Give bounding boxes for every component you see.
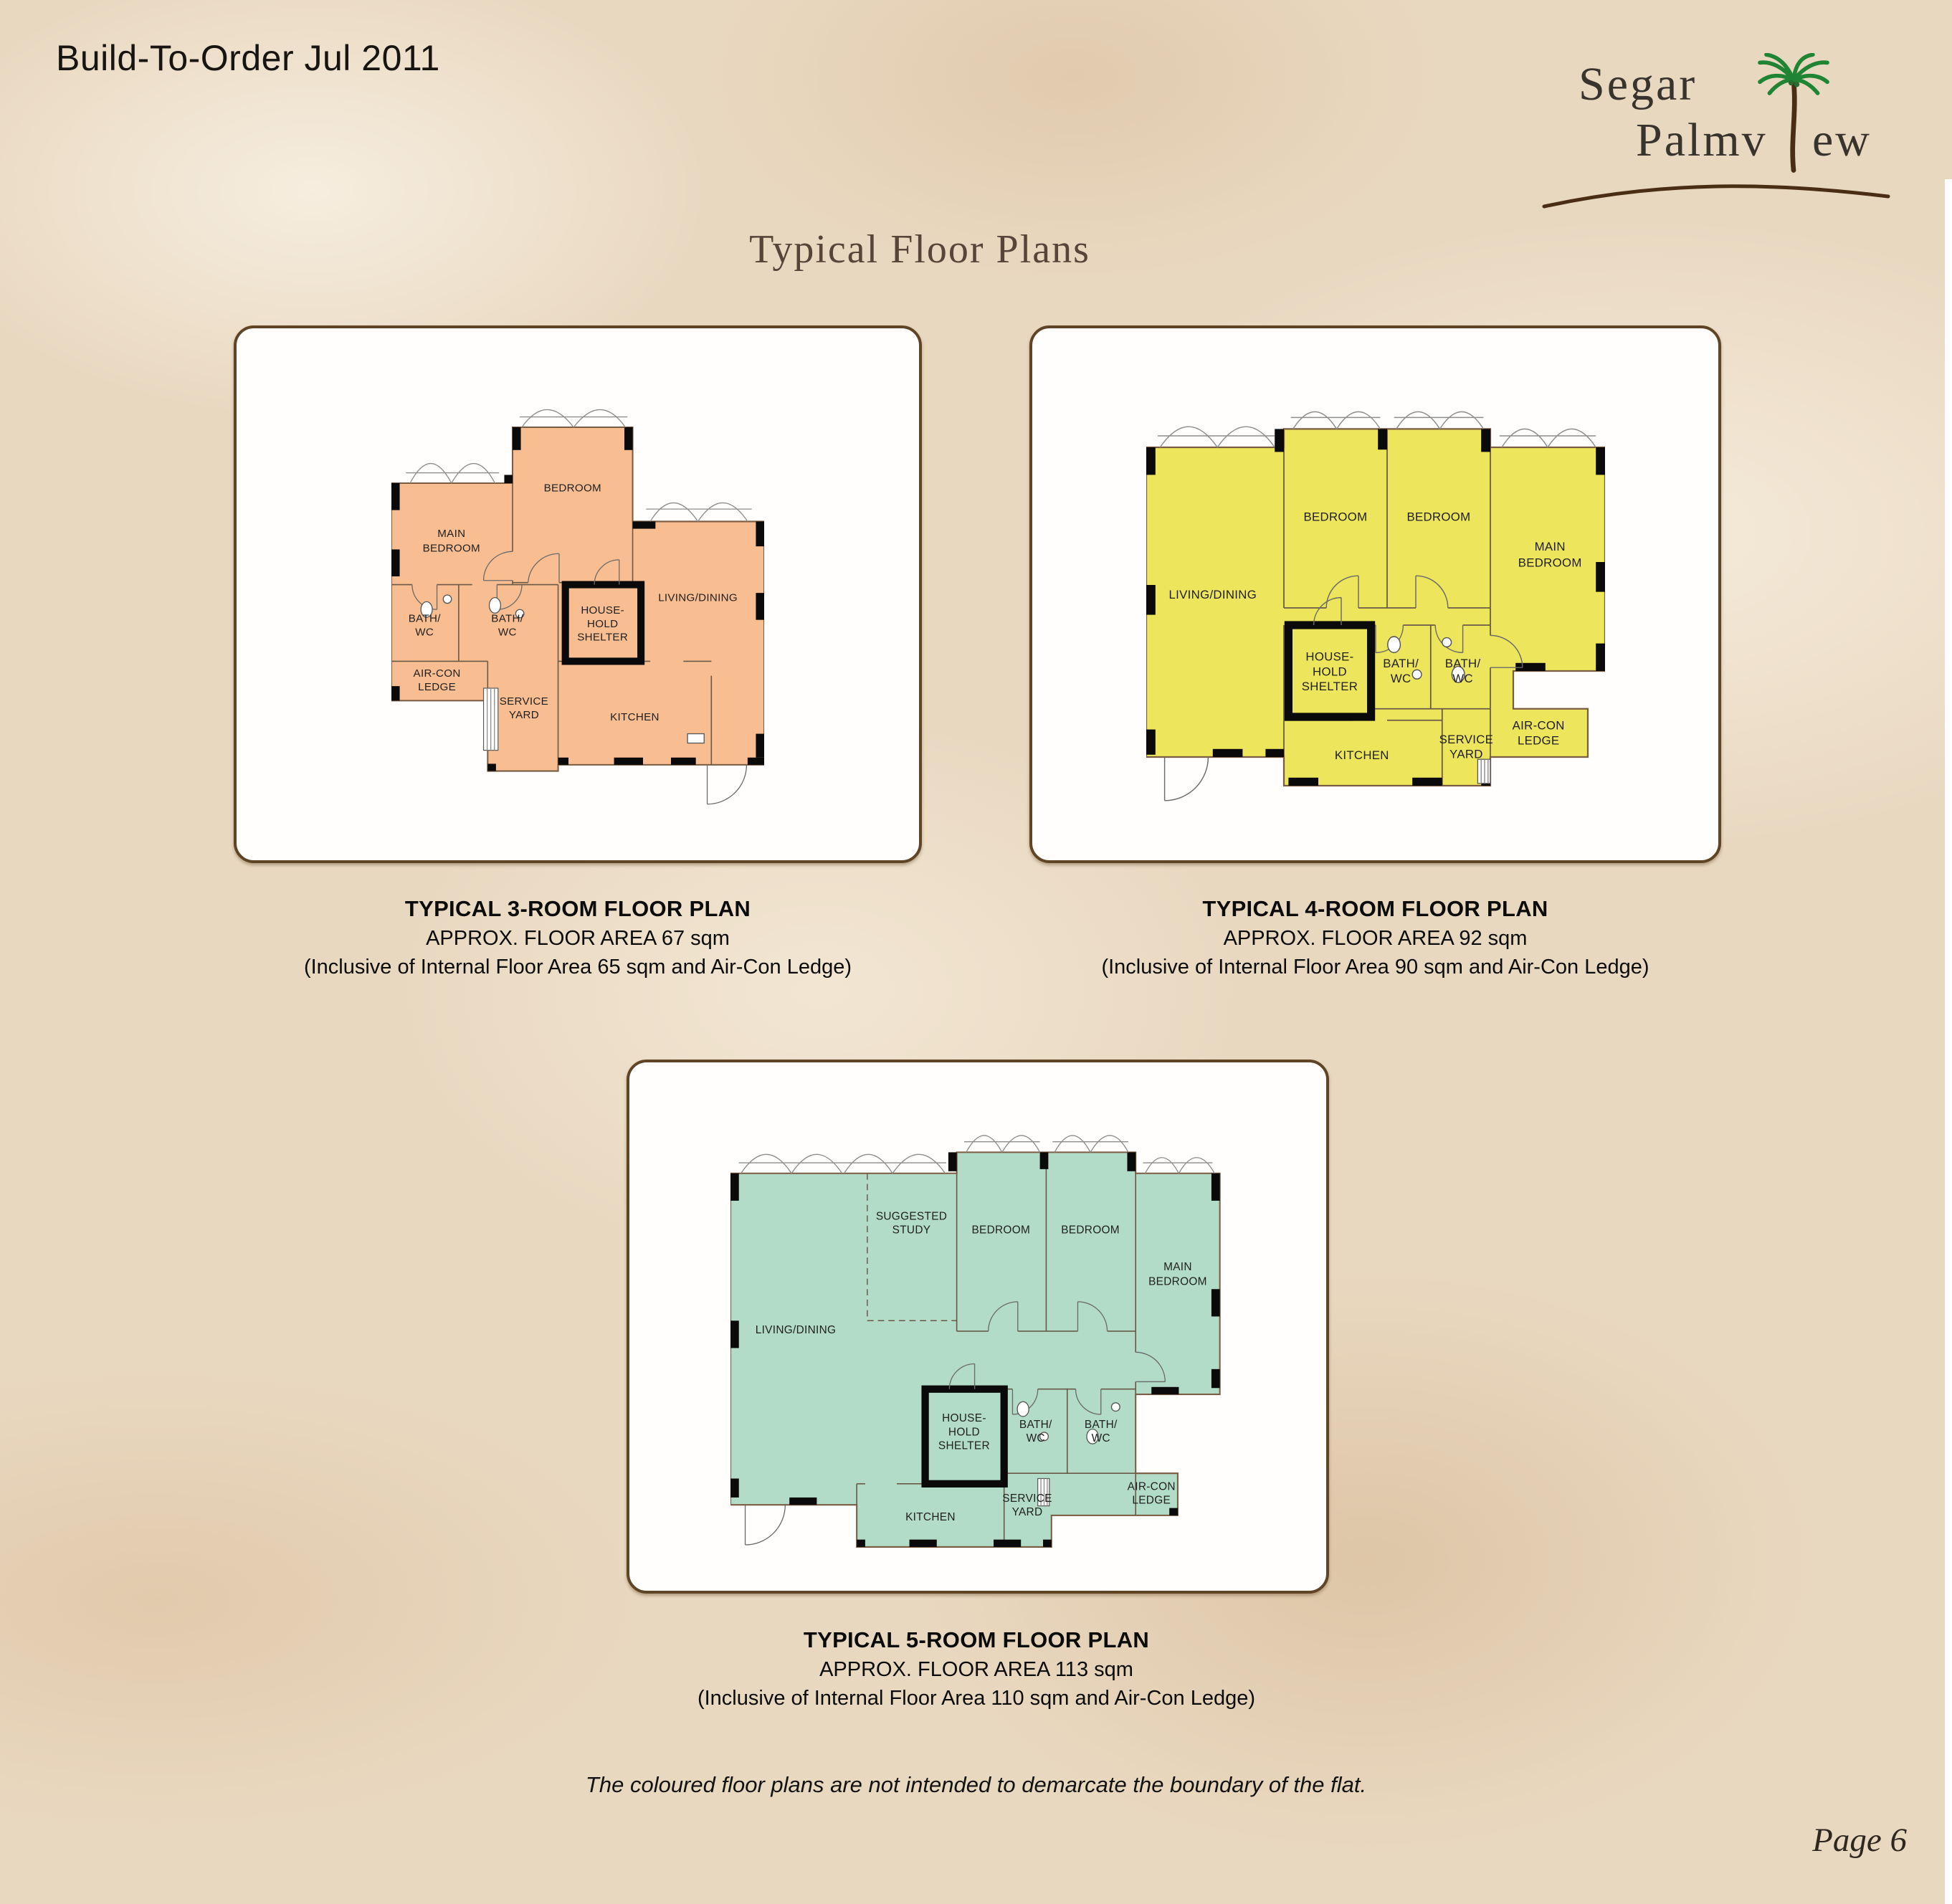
room-label-bath1: BATH/ [1019,1419,1052,1431]
room-label-aircon-ledge: AIR-CON [1512,719,1564,733]
room-label-bath2: BATH/ [1444,657,1480,670]
palm-tree-icon [1739,53,1848,173]
room-label-bath1: BATH/ [1383,657,1419,670]
caption-5room: TYPICAL 5-ROOM FLOOR PLAN APPROX. FLOOR … [625,1627,1328,1710]
logo-word-segar: Segar [1579,57,1697,112]
room-label-bedroom1: BEDROOM [1303,510,1367,523]
room-label-main-bedroom: MAIN [437,528,465,540]
room-label-aircon-ledge: AIR-CON [1128,1481,1176,1493]
svg-text:YARD: YARD [1449,748,1483,761]
room-label-bedroom: BEDROOM [544,482,601,495]
svg-text:WC: WC [498,626,517,638]
logo-ground-line [1534,176,1893,209]
caption-3room-note: (Inclusive of Internal Floor Area 65 sqm… [234,956,922,979]
room-label-service-yard: SERVICE [500,695,548,708]
caption-4room-title: TYPICAL 4-ROOM FLOOR PLAN [1029,896,1721,922]
svg-text:WC: WC [1092,1432,1110,1444]
page-header-title: Build-To-Order Jul 2011 [56,37,440,79]
room-label-kitchen: KITCHEN [610,711,660,723]
svg-text:YARD: YARD [1012,1506,1043,1518]
svg-text:YARD: YARD [509,709,539,721]
room-label-household-shelter: HOUSE- [1305,650,1353,664]
svg-text:WC: WC [1027,1432,1045,1444]
room-label-bedroom2: BEDROOM [1406,510,1470,523]
room-label-bath2: BATH/ [1085,1419,1118,1431]
caption-3room: TYPICAL 3-ROOM FLOOR PLAN APPROX. FLOOR … [234,896,922,979]
page-number: Page 6 [1735,1821,1907,1860]
room-label-household-shelter: HOUSE- [581,604,624,617]
room-label-household-shelter: HOUSE- [942,1412,986,1424]
svg-text:SHELTER: SHELTER [577,632,628,644]
room-label-bath2: BATH/ [491,613,523,625]
svg-text:LEDGE: LEDGE [418,681,456,693]
svg-text:HOLD: HOLD [587,618,618,630]
room-label-bedroom1: BEDROOM [971,1224,1030,1236]
caption-3room-area: APPROX. FLOOR AREA 67 sqm [234,927,922,951]
room-label-main-bedroom: MAIN [1534,540,1565,553]
svg-text:WC: WC [1390,672,1411,685]
caption-3room-title: TYPICAL 3-ROOM FLOOR PLAN [234,896,922,922]
svg-text:SHELTER: SHELTER [938,1439,990,1452]
room-label-suggested-study: SUGGESTED [876,1210,947,1222]
floorplan-card-4room: LIVING/DINING BEDROOM BEDROOM MAIN BEDRO… [1029,325,1721,863]
caption-5room-note: (Inclusive of Internal Floor Area 110 sq… [625,1687,1328,1710]
svg-text:HOLD: HOLD [1313,665,1347,678]
caption-5room-area: APPROX. FLOOR AREA 113 sqm [625,1658,1328,1682]
svg-text:WC: WC [1452,672,1473,685]
svg-text:BEDROOM: BEDROOM [423,542,480,554]
floorplan-5room: LIVING/DINING SUGGESTED STUDY BEDROOM BE… [730,1100,1225,1563]
room-label-kitchen: KITCHEN [905,1511,956,1523]
caption-4room-area: APPROX. FLOOR AREA 92 sqm [1029,927,1721,951]
logo-segar-palmview: Segar Palmv ew [1534,56,1893,210]
caption-5room-title: TYPICAL 5-ROOM FLOOR PLAN [625,1627,1328,1653]
room-label-service-yard: SERVICE [1439,733,1493,746]
svg-text:LEDGE: LEDGE [1132,1495,1171,1507]
scan-edge-strip [1945,179,1952,1904]
svg-text:BEDROOM: BEDROOM [1148,1275,1207,1287]
caption-4room: TYPICAL 4-ROOM FLOOR PLAN APPROX. FLOOR … [1029,896,1721,979]
room-label-main-bedroom: MAIN [1163,1261,1192,1273]
floorplan-3room: MAIN BEDROOM BEDROOM LIVING/DINING BATH/… [391,390,764,814]
page-title: Typical Floor Plans [633,227,1206,272]
svg-text:STUDY: STUDY [892,1224,931,1236]
floorplan-card-5room: LIVING/DINING SUGGESTED STUDY BEDROOM BE… [627,1060,1329,1594]
svg-text:SHELTER: SHELTER [1301,680,1357,693]
floorplan-4room: LIVING/DINING BEDROOM BEDROOM MAIN BEDRO… [1146,379,1605,805]
room-label-kitchen: KITCHEN [1334,748,1389,762]
room-label-service-yard: SERVICE [1002,1493,1052,1505]
svg-text:BEDROOM: BEDROOM [1518,556,1581,569]
disclaimer-text: The coloured floor plans are not intende… [0,1772,1952,1798]
floorplan-card-3room: MAIN BEDROOM BEDROOM LIVING/DINING BATH/… [234,325,922,863]
svg-text:LEDGE: LEDGE [1517,733,1559,747]
svg-text:WC: WC [415,626,434,638]
caption-4room-note: (Inclusive of Internal Floor Area 90 sqm… [1029,956,1721,979]
room-label-living-dining: LIVING/DINING [1168,588,1257,601]
page: Build-To-Order Jul 2011 Segar Palmv ew T… [0,0,1952,1904]
room-label-bedroom2: BEDROOM [1061,1224,1120,1236]
svg-text:HOLD: HOLD [948,1426,980,1438]
room-label-living-dining: LIVING/DINING [756,1324,837,1336]
room-label-aircon-ledge: AIR-CON [414,667,461,680]
room-label-living-dining: LIVING/DINING [658,592,738,604]
room-label-bath1: BATH/ [409,613,441,625]
